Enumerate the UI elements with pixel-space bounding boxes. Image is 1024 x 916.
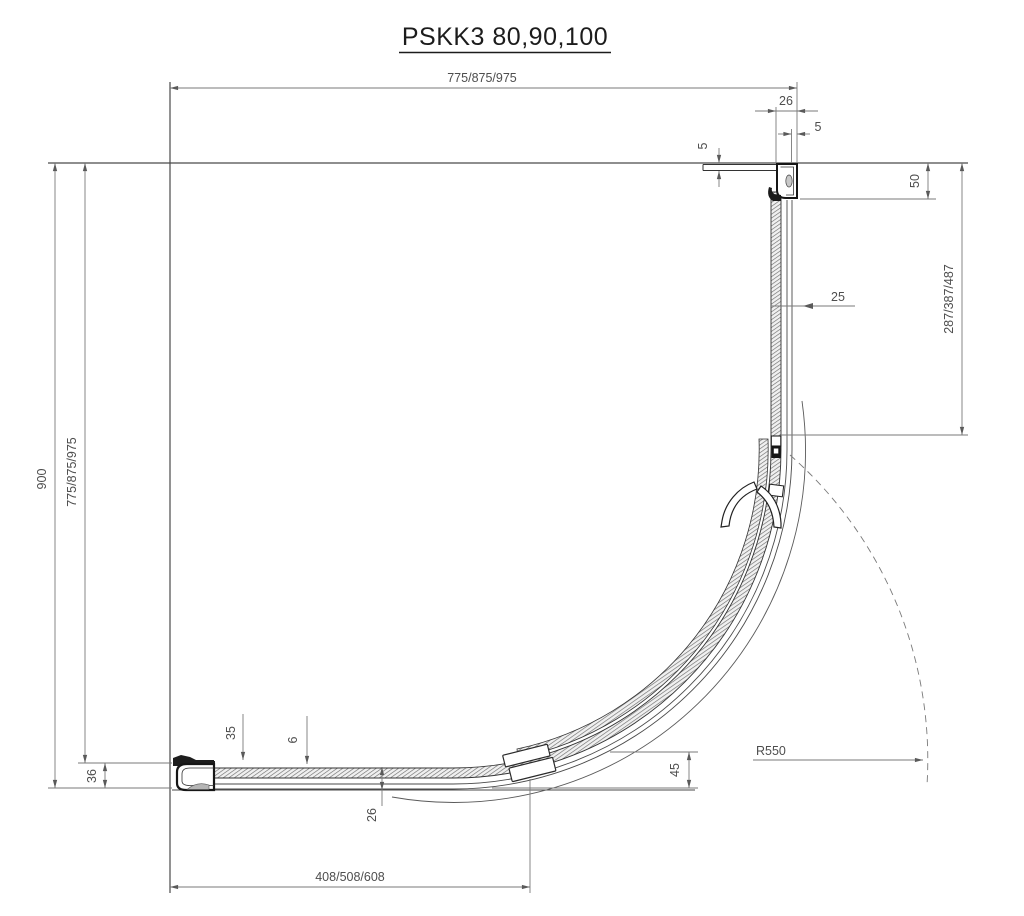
dim-5v-label: 5 [696, 142, 710, 149]
dim-glass-thickness: 6 [286, 716, 307, 764]
dim-36-label: 36 [85, 769, 99, 783]
lower-roller-carriage [503, 744, 556, 783]
glass-panels [212, 192, 781, 778]
dim-25-label: 25 [831, 290, 845, 304]
dim-26-label: 26 [779, 94, 793, 108]
dim-left-width: 775/875/975 [65, 163, 172, 763]
dim-900-label: 900 [35, 469, 49, 490]
dim-door-opening-width: 408/508/608 [170, 779, 530, 893]
outer-rail-line [212, 200, 792, 789]
top-profile-roller [786, 175, 792, 187]
fixed-panel-end-bracket [771, 436, 781, 446]
dim-287-label: 287/387/487 [942, 264, 956, 334]
drawing-title: PSKK3 80,90,100 [399, 23, 611, 53]
dim-right-fixed-length: 287/387/487 [781, 163, 968, 435]
upper-roller-notch [774, 449, 779, 454]
dim-left-total-height: 900 [35, 163, 172, 788]
wall-flange-top [703, 165, 777, 171]
rails [212, 200, 928, 802]
dim-r550-label: R550 [756, 744, 786, 758]
door-swing-dashed-arc [790, 455, 928, 785]
dim-left-775-label: 775/875/975 [65, 437, 79, 507]
dim-bottom-rail-height: 36 [85, 763, 105, 788]
wall-profile-top-right [703, 164, 797, 201]
inner-rail-line [212, 200, 787, 784]
shower-enclosure-plan-drawing: PSKK3 80,90,100 [0, 0, 1024, 916]
dim-radius: R550 [753, 744, 923, 760]
dim-top-width-label: 775/875/975 [447, 71, 517, 85]
dim-45-label: 45 [668, 763, 682, 777]
dim-6-label: 6 [286, 736, 300, 743]
arrowhead [803, 303, 813, 309]
dim-profile-depth: 25 [771, 290, 855, 309]
fixed-glass-panel [212, 192, 781, 778]
wall-profile-bottom-left [173, 755, 215, 790]
dim-top-profile-width: 26 [755, 94, 818, 163]
technical-drawing-page: PSKK3 80,90,100 [0, 0, 1024, 916]
dim-50-label: 50 [908, 174, 922, 188]
dim-35-label: 35 [224, 726, 238, 740]
page-title: PSKK3 80,90,100 [402, 23, 608, 51]
dim-right-profile-height: 50 [800, 163, 936, 199]
dim-bottom-profile-height: 35 [224, 714, 243, 760]
dim-top-glass-offset: 5 [778, 120, 822, 163]
dim-26b-label: 26 [365, 808, 379, 822]
dim-5h-label: 5 [815, 120, 822, 134]
dim-408-label: 408/508/608 [315, 870, 385, 884]
